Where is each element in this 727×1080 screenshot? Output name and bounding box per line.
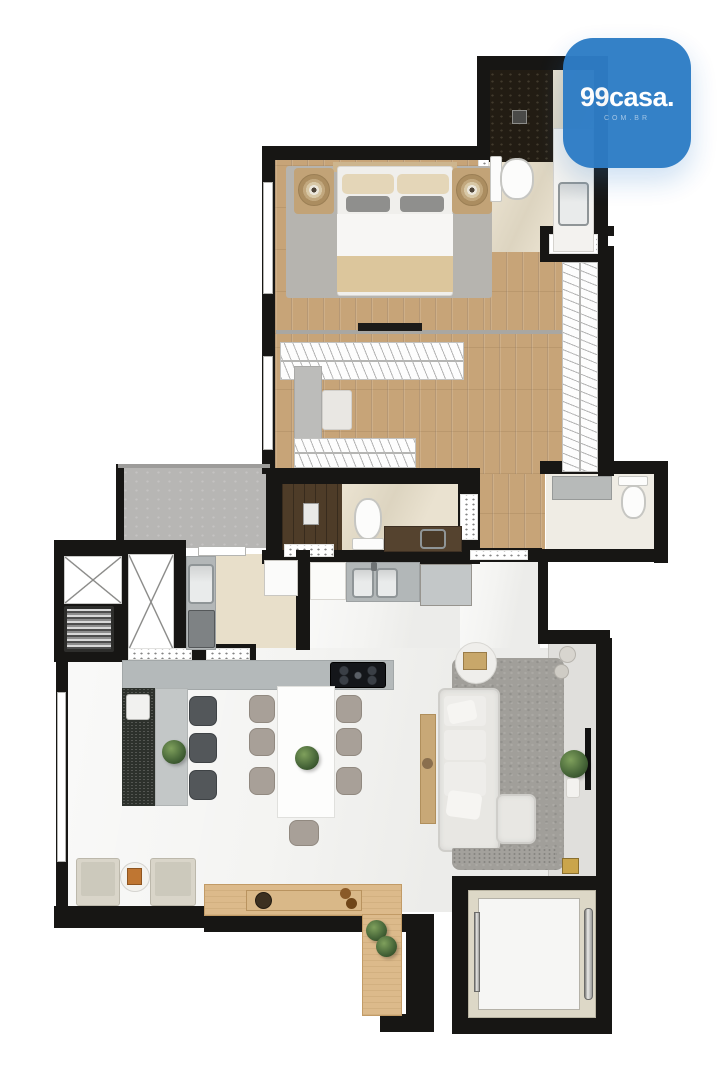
dining-chair (249, 728, 275, 756)
wall (477, 56, 490, 156)
plant (376, 936, 397, 957)
elevator-cab (478, 898, 580, 1010)
service-cabinet (264, 560, 298, 596)
wall (266, 468, 466, 484)
sofa-cushion (444, 730, 486, 760)
bed-blanket (337, 256, 453, 292)
laundry-edge-line (118, 464, 270, 468)
dining-chair (249, 695, 275, 723)
wall (596, 638, 612, 895)
fridge (420, 564, 472, 606)
decor-sphere (554, 664, 569, 679)
elevator-door (474, 912, 480, 992)
wall (296, 550, 310, 650)
plant (295, 746, 319, 770)
doormat (452, 848, 556, 864)
bed-pillow (342, 174, 394, 194)
service-window (198, 546, 246, 556)
window (263, 356, 273, 450)
coffee-machine (126, 694, 150, 720)
kitchen-faucet (371, 562, 377, 571)
window (57, 692, 66, 862)
bed-pillow (397, 174, 449, 194)
laundry-sink (188, 564, 214, 604)
bed-pillow (400, 196, 444, 212)
bedroom-tv-panel (358, 323, 422, 331)
kitchen-cabinet (310, 562, 346, 600)
bath-sink (420, 529, 446, 549)
toilet-bowl (500, 158, 534, 200)
console (420, 714, 436, 824)
cooktop (330, 662, 386, 688)
wardrobe (294, 438, 416, 468)
decor (127, 868, 142, 885)
lavabo-vanity (552, 476, 612, 500)
washer (188, 610, 215, 648)
shower-fixture (303, 503, 319, 525)
toilet-bowl (354, 498, 382, 540)
wall (540, 254, 614, 262)
door-threshold (460, 494, 478, 540)
bath-sink (558, 182, 589, 226)
brand-name: 99casa. (580, 84, 674, 111)
laundry-floor (120, 468, 270, 548)
door-threshold (128, 648, 192, 660)
hall2-floor (460, 554, 540, 650)
dining-chair (289, 820, 319, 846)
lamp (456, 174, 488, 206)
sofa-chaise (496, 794, 536, 844)
wardrobe (562, 262, 598, 472)
dining-chair (336, 728, 362, 756)
decor (346, 898, 357, 909)
shaft-box (64, 556, 122, 604)
wall (406, 914, 434, 1028)
dining-chair (249, 767, 275, 795)
plant (162, 740, 186, 764)
door-threshold (470, 550, 528, 560)
bar-stool (189, 696, 217, 726)
armchair-seat (81, 862, 115, 896)
doorbell (562, 858, 579, 874)
lamp (298, 174, 330, 206)
bed-pillow (346, 196, 390, 212)
wall (116, 464, 124, 550)
water-heater (64, 606, 114, 652)
sofa-pillow (445, 790, 482, 820)
closet-pouf (322, 390, 352, 430)
wall (654, 461, 668, 563)
wall (54, 906, 210, 928)
brand-domain: COM.BR (604, 115, 650, 122)
dining-chair (336, 767, 362, 795)
console-knob (422, 758, 433, 769)
vase (566, 778, 580, 798)
wall (540, 461, 668, 474)
kitchen-sink-basin (352, 568, 374, 598)
floorplan: 99casa. COM.BR (0, 0, 727, 1080)
partition-line (276, 330, 598, 334)
shower-drain (512, 110, 527, 124)
bowl (255, 892, 272, 909)
armchair-seat (155, 862, 191, 896)
dining-chair (336, 695, 362, 723)
wall (380, 1014, 434, 1032)
bar-stool (189, 733, 217, 763)
wall (598, 246, 614, 476)
wall (542, 549, 668, 562)
brand-logo: 99casa. COM.BR (563, 38, 691, 168)
kitchen-sink-basin (376, 568, 398, 598)
shaft-box (128, 554, 174, 650)
wall (262, 146, 490, 160)
elevator-handle (584, 908, 593, 1000)
closet-desk (294, 366, 322, 444)
books (463, 652, 487, 670)
plant (560, 750, 588, 778)
toilet-tank (352, 538, 384, 550)
toilet-bowl (621, 485, 646, 519)
bed-duvet (337, 214, 453, 262)
decor-sphere (559, 646, 576, 663)
window (263, 182, 273, 294)
bar-stool (189, 770, 217, 800)
